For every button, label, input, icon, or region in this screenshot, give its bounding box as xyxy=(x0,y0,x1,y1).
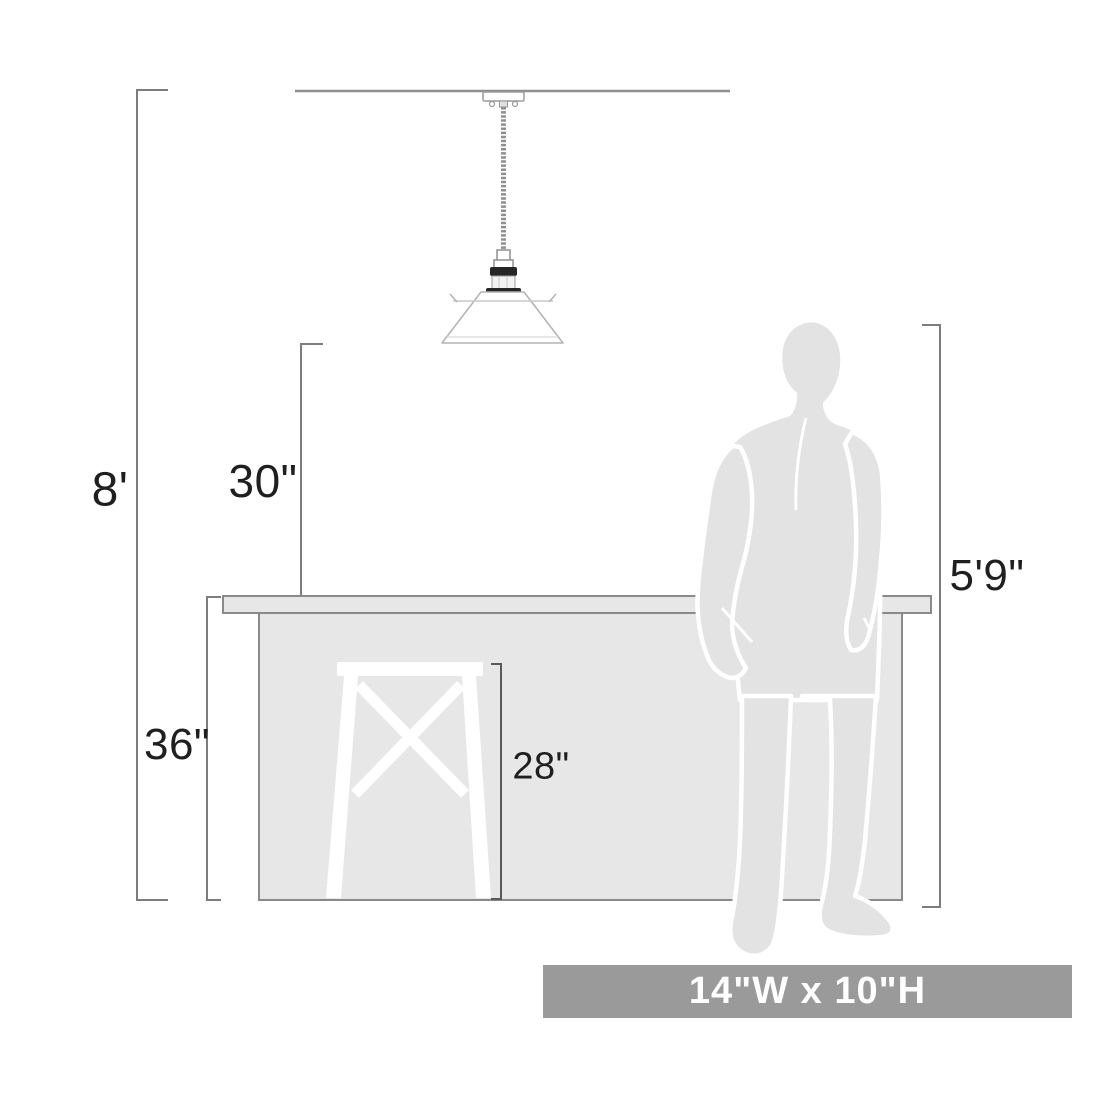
size-banner: 14"W x 10"H xyxy=(543,965,1072,1018)
shade-drawing xyxy=(442,292,563,343)
dimension-diagram: { "diagram": { "labels": { "ceiling_heig… xyxy=(0,0,1096,1096)
fixture-size-label: 14"W x 10"H xyxy=(689,970,926,1013)
canopy-icon xyxy=(483,92,524,107)
label-hang-height: 30" xyxy=(229,454,298,508)
diagram-canvas xyxy=(0,0,1096,1096)
pendant-light-drawing xyxy=(442,92,563,343)
dimension-bracket-8ft xyxy=(137,90,168,900)
label-person-height: 5'9" xyxy=(950,551,1025,601)
label-ceiling-height: 8' xyxy=(92,463,129,518)
label-counter-height: 36" xyxy=(144,720,210,770)
dimension-bracket-5ft9 xyxy=(922,325,940,907)
label-stool-height: 28" xyxy=(512,746,569,789)
dimension-bracket-30in xyxy=(301,344,323,595)
